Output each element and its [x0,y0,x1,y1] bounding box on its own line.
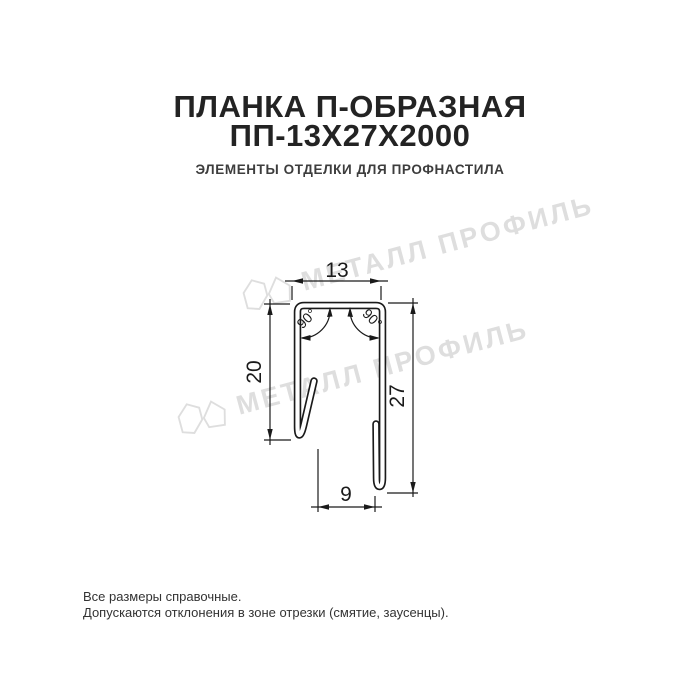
dim-label-left-height: 20 [243,360,266,383]
dim-label-right-height: 27 [386,384,409,407]
dimension-left-height [264,299,291,445]
dim-label-top-width: 13 [325,259,348,282]
profile-outline [298,306,383,487]
profile-technical-drawing: 13 20 27 9 [0,0,700,700]
dim-label-bottom-gap: 9 [340,483,352,506]
catalog-card: ПЛАНКА П-ОБРАЗНАЯ ПП-13Х27Х2000 ЭЛЕМЕНТЫ… [0,0,700,700]
